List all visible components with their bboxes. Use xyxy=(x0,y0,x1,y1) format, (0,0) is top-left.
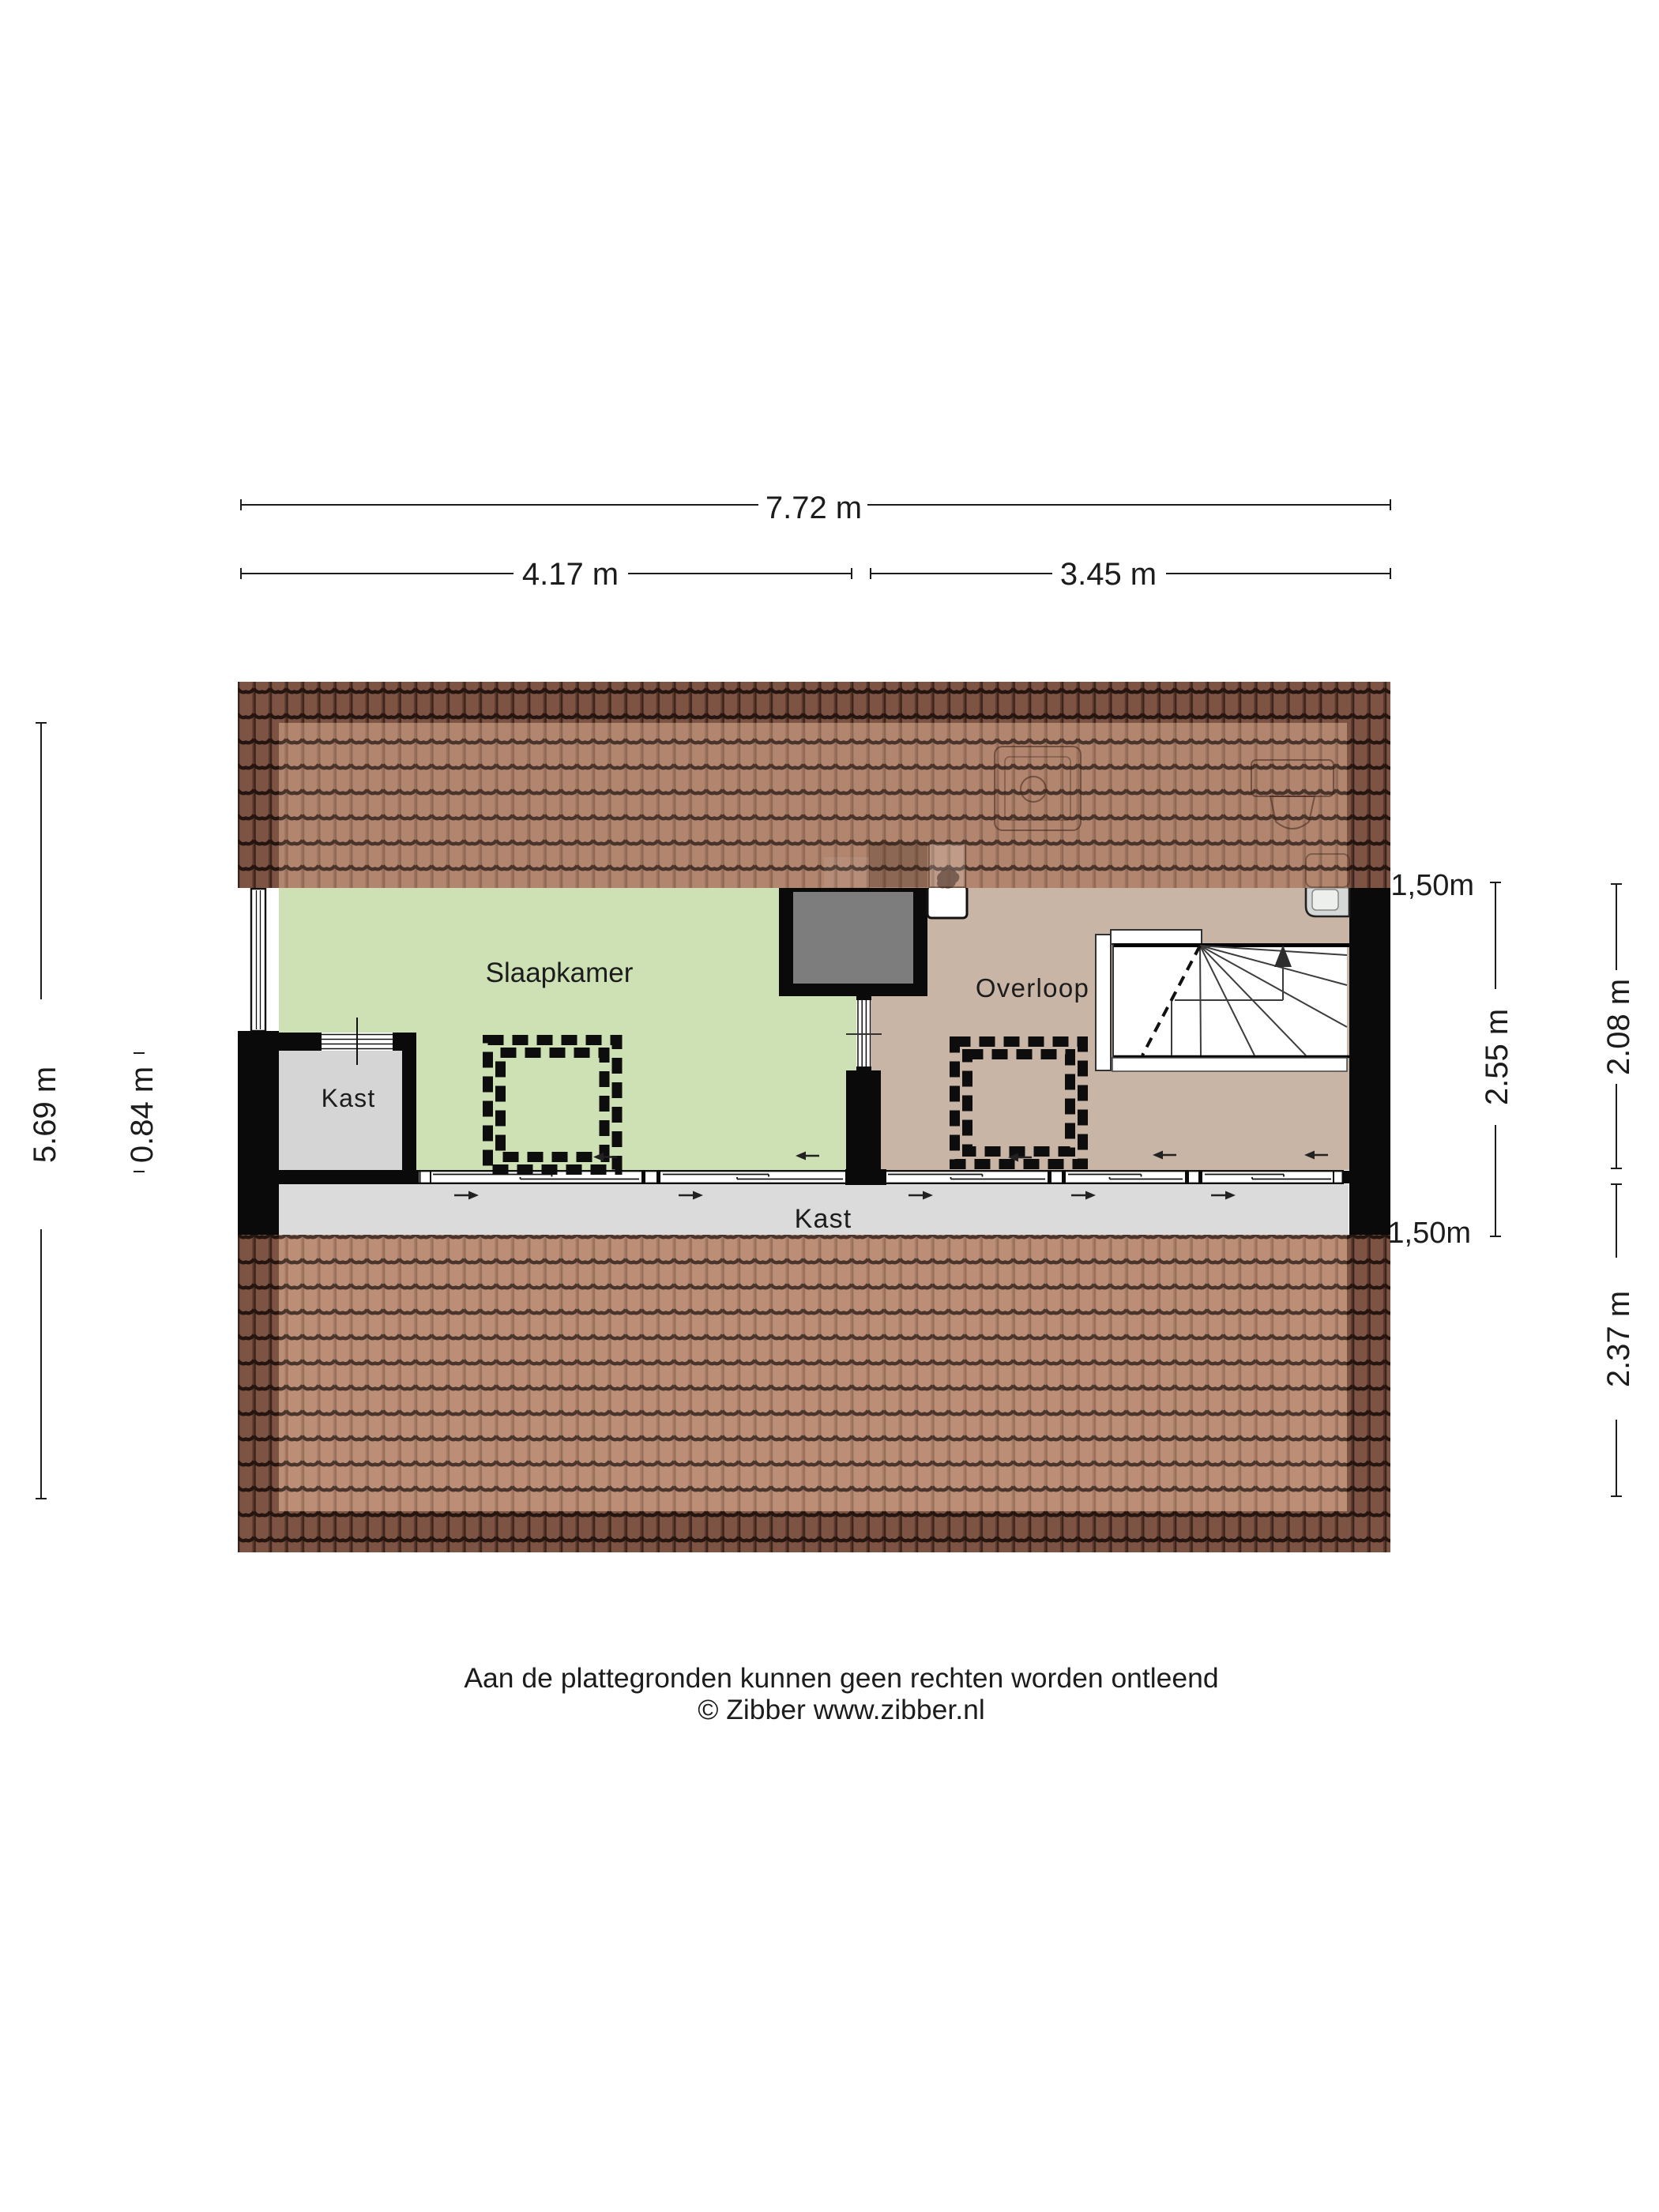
svg-text:2.55 m: 2.55 m xyxy=(1480,1009,1514,1105)
svg-text:3.45 m: 3.45 m xyxy=(1060,557,1157,592)
svg-text:2.08 m: 2.08 m xyxy=(1601,979,1636,1075)
svg-text:© Zibber www.zibber.nl: © Zibber www.zibber.nl xyxy=(698,1694,985,1725)
svg-text:0.84 m: 0.84 m xyxy=(125,1066,160,1163)
svg-text:Slaapkamer: Slaapkamer xyxy=(486,957,634,988)
svg-text:Kast: Kast xyxy=(322,1084,376,1112)
svg-text:4.17 m: 4.17 m xyxy=(522,557,619,592)
svg-text:7.72 m: 7.72 m xyxy=(766,491,862,525)
svg-text:5.69 m: 5.69 m xyxy=(28,1066,62,1163)
svg-text:Aan de plattegronden kunnen ge: Aan de plattegronden kunnen geen rechten… xyxy=(464,1662,1218,1694)
svg-text:1,50m: 1,50m xyxy=(1390,869,1474,902)
svg-text:Overloop: Overloop xyxy=(976,973,1089,1003)
svg-text:2.37 m: 2.37 m xyxy=(1601,1291,1636,1387)
svg-text:Kast: Kast xyxy=(795,1204,852,1234)
svg-text:1,50m: 1,50m xyxy=(1387,1217,1471,1250)
